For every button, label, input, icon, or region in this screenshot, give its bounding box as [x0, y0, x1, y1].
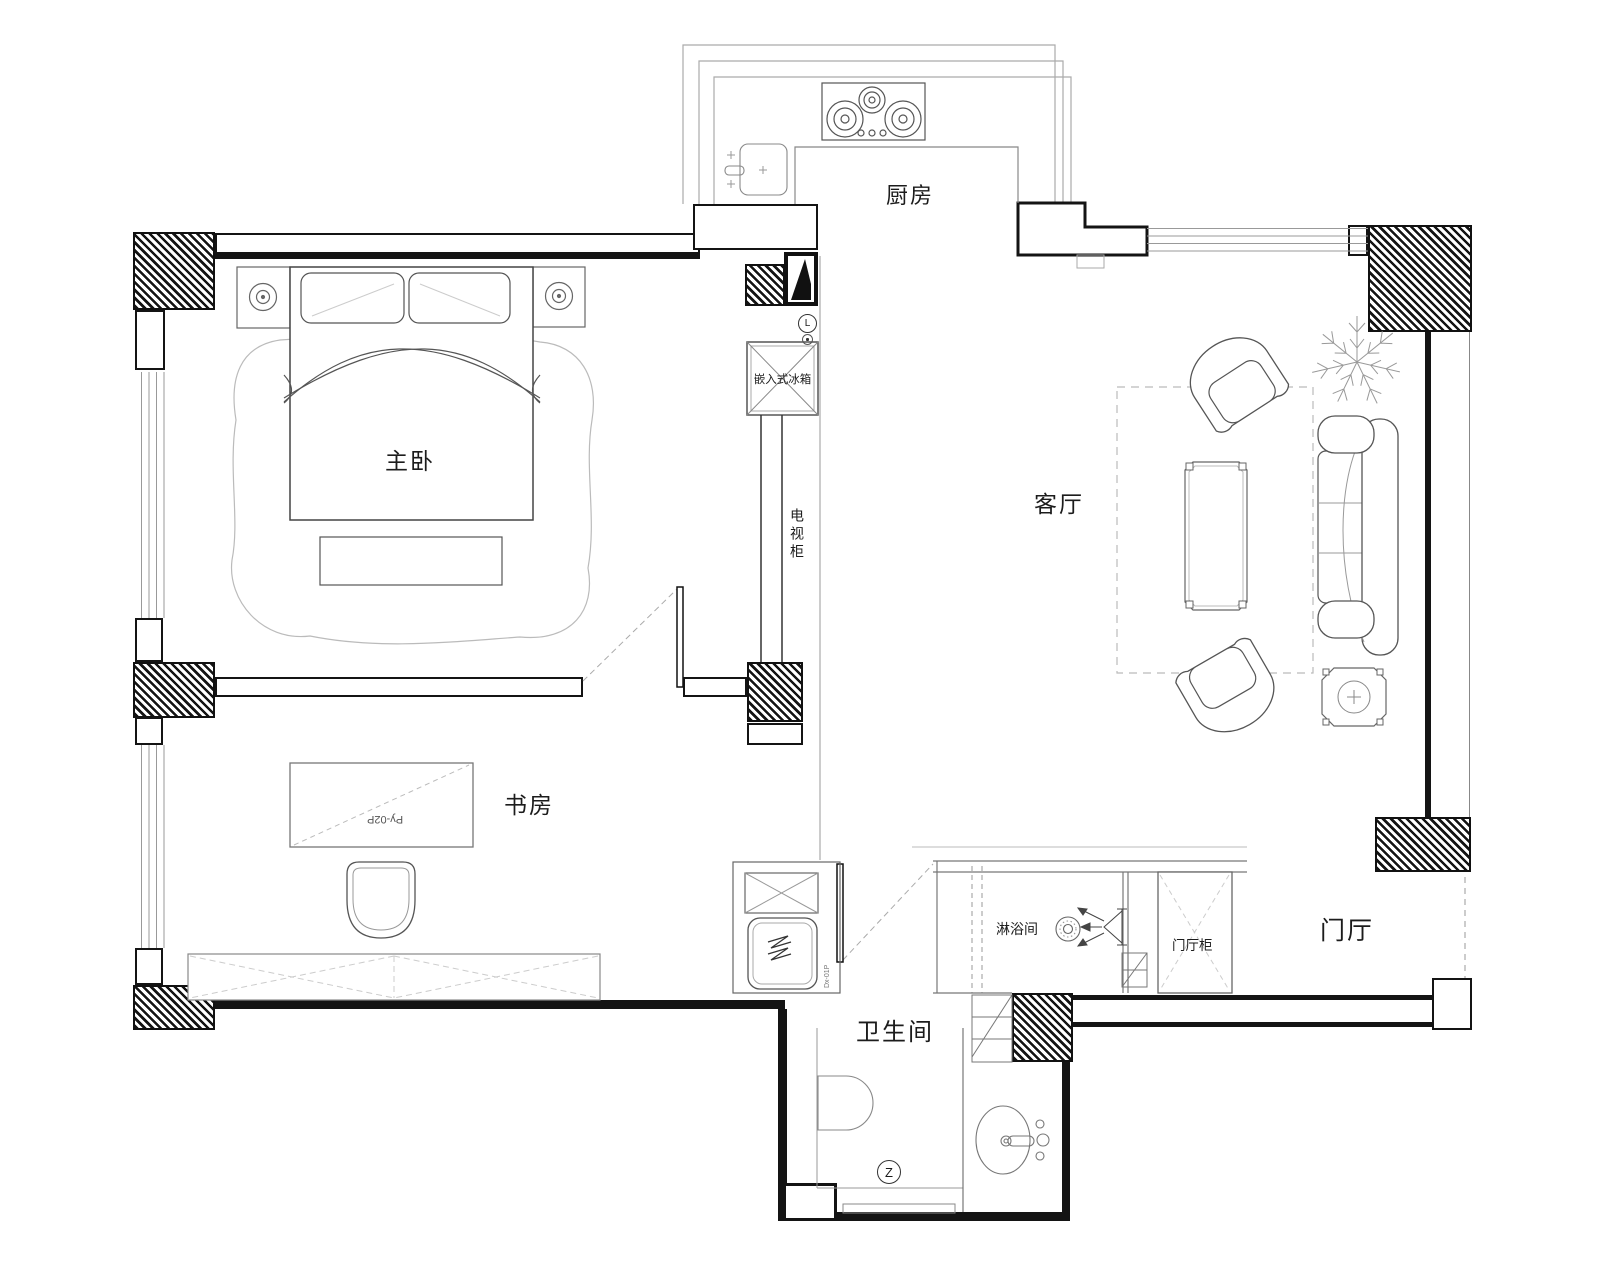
- armchair-top: [1177, 323, 1292, 436]
- bed: [284, 267, 540, 520]
- wall-kitchen-right: [1018, 203, 1147, 268]
- structure-lines: [817, 256, 1465, 1213]
- toilet: [818, 1076, 873, 1130]
- label-master-bedroom: 主卧: [385, 442, 435, 476]
- floor-plan-canvas: 厨房 主卧 客厅 书房 卫生间 门厅 淋浴间 门厅柜 嵌入式冰箱 电视柜 Py-…: [0, 0, 1600, 1280]
- label-shower-room: 淋浴间: [996, 919, 1038, 939]
- label-built-in-fridge: 嵌入式冰箱: [747, 371, 818, 387]
- tv-cabinet-wall: [761, 415, 782, 662]
- washing-machine: [748, 918, 817, 989]
- study-desk: [290, 763, 473, 847]
- label-living-room: 客厅: [1034, 485, 1084, 519]
- label-desk-code: Py-02P: [367, 813, 403, 825]
- shower-sprayer: [1078, 908, 1127, 946]
- sofa: [1318, 416, 1398, 655]
- study-chair: [347, 862, 415, 938]
- balcony-outline: [683, 45, 1071, 204]
- nightstand-right: [533, 267, 585, 327]
- label-study: 书房: [504, 786, 554, 820]
- kitchen-stove: [822, 83, 925, 140]
- bedroom-door: [583, 587, 683, 687]
- armchair-bottom: [1173, 635, 1287, 746]
- label-entry-hall: 门厅: [1320, 911, 1374, 947]
- symbol-mini-outlet: [802, 334, 813, 345]
- symbol-switch-z: Z: [877, 1160, 901, 1184]
- label-bathroom: 卫生间: [856, 1012, 934, 1047]
- plan-linework: [0, 0, 1600, 1280]
- side-table: [1322, 668, 1386, 726]
- bed-bench: [320, 537, 502, 585]
- kitchen-sink: [725, 144, 787, 195]
- bathroom-door: [837, 864, 933, 962]
- label-tv-cabinet: 电视柜: [787, 508, 807, 562]
- study-wardrobe: [188, 954, 600, 1000]
- bath-sink: [976, 1106, 1049, 1174]
- plant: [1310, 316, 1401, 407]
- entry-cabinet-box: [1158, 872, 1232, 993]
- coffee-table: [1185, 462, 1247, 610]
- shower-head: [1056, 917, 1080, 941]
- label-entry-cabinet: 门厅柜: [1172, 934, 1213, 954]
- nightstand-left: [237, 267, 290, 328]
- label-door-code: Dx-01P: [824, 965, 831, 988]
- label-kitchen: 厨房: [886, 178, 934, 210]
- symbol-switch-l: L: [798, 314, 817, 333]
